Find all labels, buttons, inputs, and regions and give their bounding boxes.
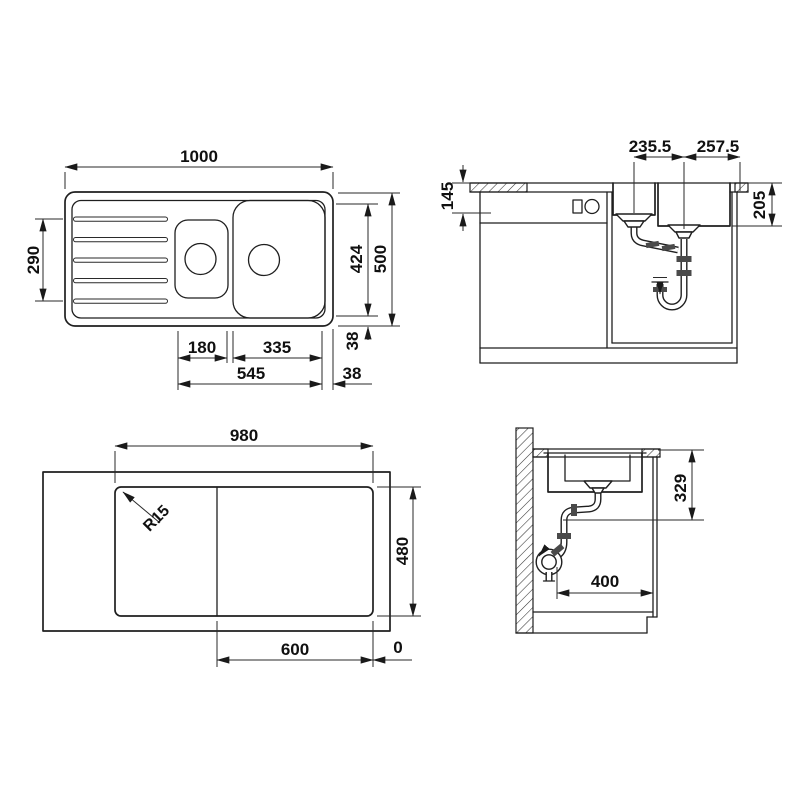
countertop-hatch-left <box>470 183 527 192</box>
knob-icon <box>585 200 599 214</box>
dim-cutout-depth: 480 <box>377 487 421 616</box>
view-top-plan: 1000 290 424 500 38 <box>24 147 400 390</box>
countertop-hatch-right <box>735 183 748 192</box>
dim-205-label: 205 <box>750 191 769 219</box>
base-cabinet <box>480 192 737 363</box>
large-bowl-section <box>658 183 730 226</box>
waste-piping-side <box>539 481 612 581</box>
dim-board-width: 600 0 <box>217 621 412 667</box>
dim-1000-label: 1000 <box>180 147 218 166</box>
dim-38h-label: 38 <box>343 364 362 383</box>
view-underside-cutout: R15 980 480 600 0 <box>43 426 421 667</box>
small-bowl-drain <box>185 244 216 275</box>
dim-600-label: 600 <box>281 640 309 659</box>
dim-480-label: 480 <box>393 537 412 565</box>
view-side-section: 329 400 <box>516 428 704 633</box>
dim-335-label: 335 <box>263 338 291 357</box>
dim-38v-label: 38 <box>343 332 362 351</box>
dim-wall-clearance: 400 <box>557 567 653 599</box>
dim-cutout-width: 980 <box>115 426 373 483</box>
dim-front-height: 145 <box>438 165 491 231</box>
cutout-outline <box>115 487 373 616</box>
dim-145-label: 145 <box>438 182 457 210</box>
dim-235-label: 235.5 <box>629 137 672 156</box>
dim-0-label: 0 <box>393 638 402 657</box>
wall-hatch <box>516 428 533 633</box>
view-front-section: 235.5 257.5 145 205 <box>438 137 782 363</box>
dim-545-label: 545 <box>237 364 265 383</box>
sink-inner-rim <box>72 201 325 319</box>
side-drain-flange <box>584 481 612 488</box>
radius-r15-label: R15 <box>140 502 173 535</box>
dim-980-label: 980 <box>230 426 258 445</box>
drawer-handle-icon <box>573 200 582 213</box>
dim-overall-width: 1000 <box>65 147 333 189</box>
sink-outer-edge <box>65 192 333 326</box>
dim-290-label: 290 <box>24 246 43 274</box>
dim-500-label: 500 <box>371 245 390 273</box>
large-bowl-drain <box>249 245 280 276</box>
dim-depths: 424 500 <box>336 193 400 326</box>
dim-424-label: 424 <box>347 244 366 273</box>
dim-329-label: 329 <box>671 474 690 502</box>
sink-installation-drawing: 1000 290 424 500 38 <box>0 0 800 800</box>
small-drain-flange <box>616 214 652 221</box>
small-bowl <box>175 220 228 298</box>
dim-180-label: 180 <box>188 338 216 357</box>
bowl-inner-section <box>565 455 630 481</box>
dim-400-label: 400 <box>591 572 619 591</box>
waste-piping-front <box>616 214 700 307</box>
drainer-grooves <box>74 217 168 303</box>
technical-drawing-canvas: 1000 290 424 500 38 <box>0 0 800 800</box>
dim-drainer-grooves: 290 <box>24 219 63 301</box>
radius-callout: R15 <box>123 492 173 535</box>
dim-edge-vertical: 38 <box>343 327 368 350</box>
dim-257-label: 257.5 <box>697 137 740 156</box>
